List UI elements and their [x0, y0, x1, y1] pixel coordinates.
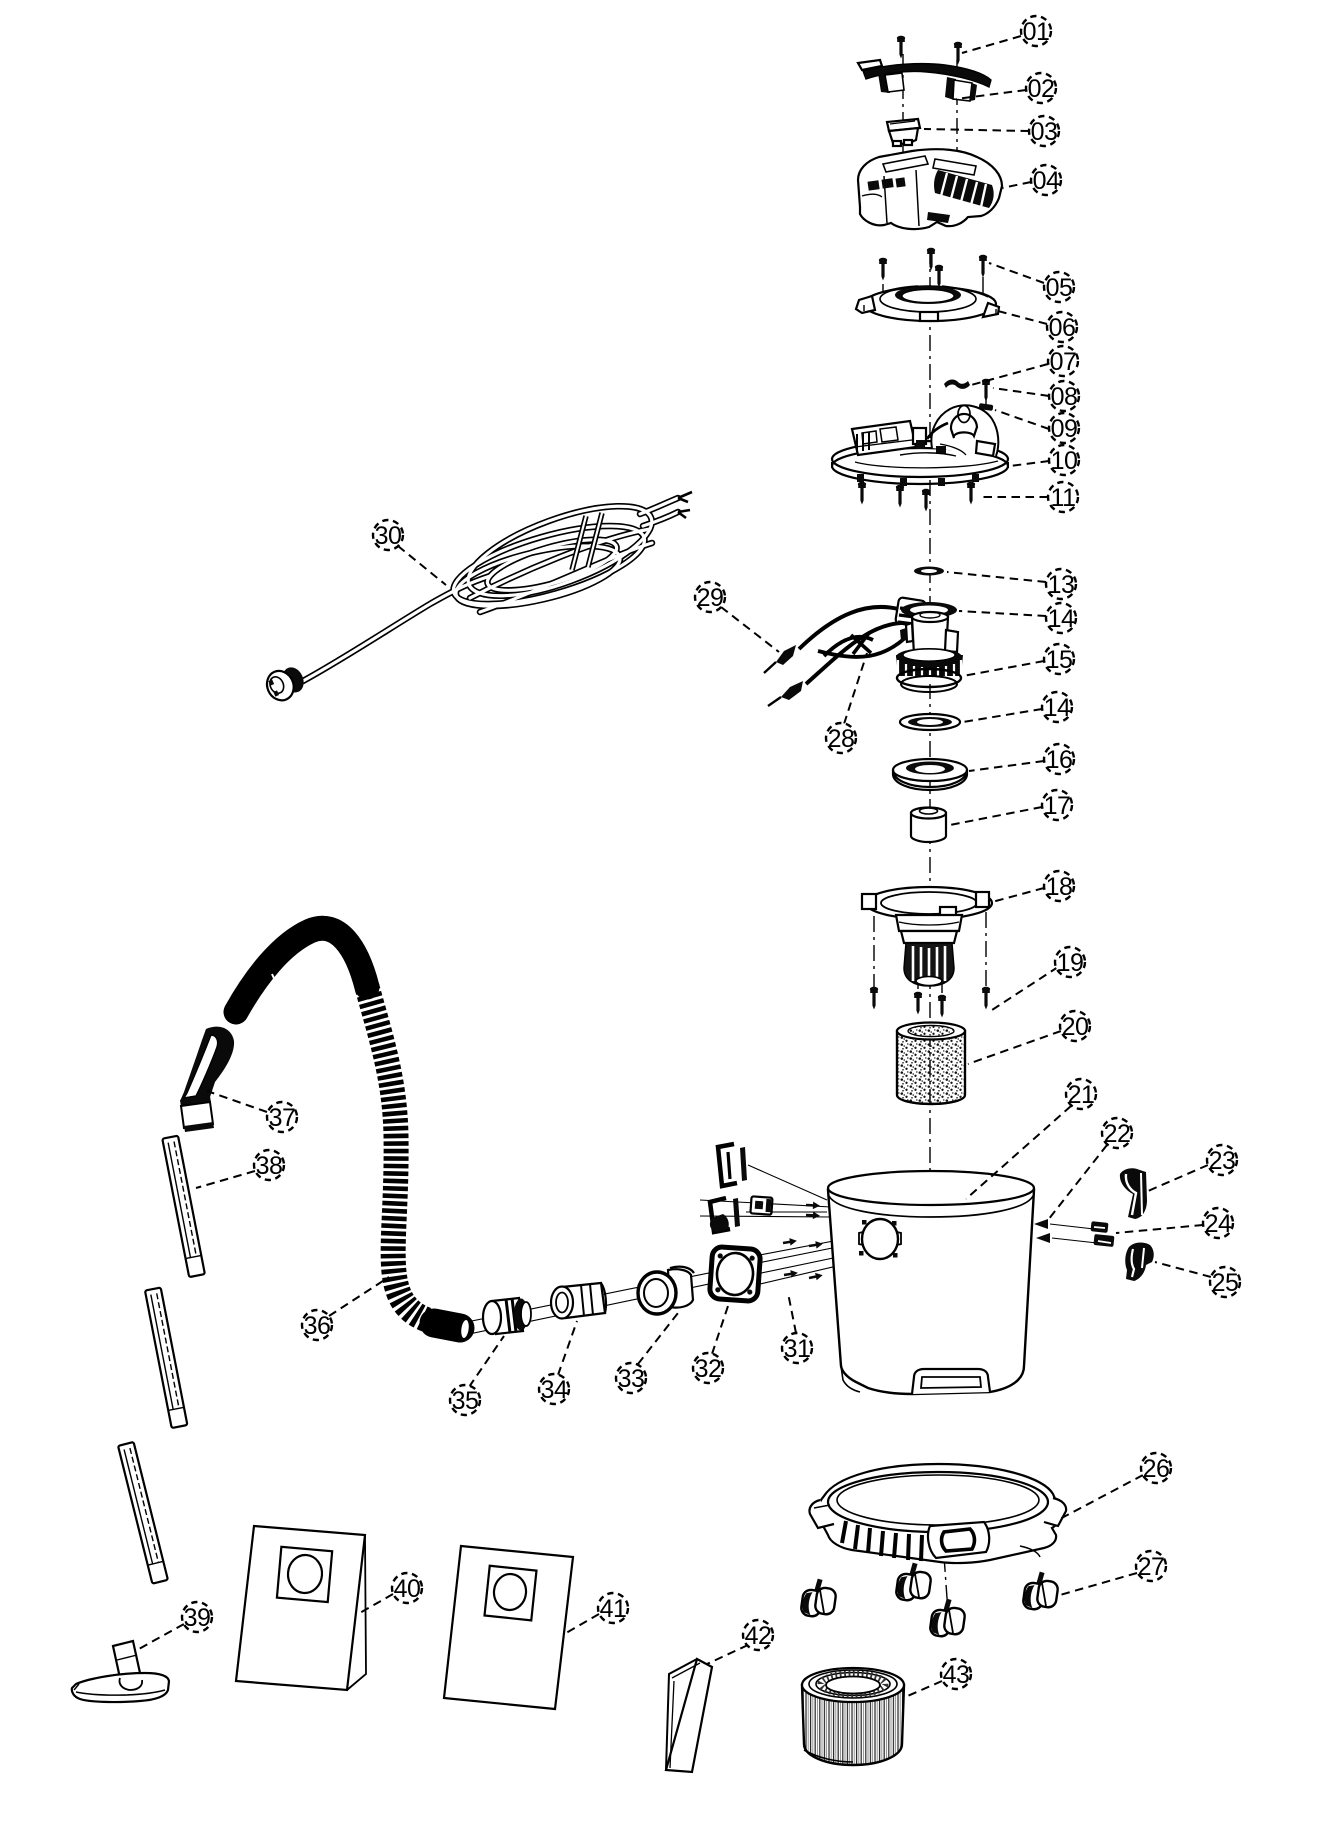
svg-text:32: 32	[695, 1355, 722, 1383]
svg-text:28: 28	[828, 725, 855, 753]
svg-text:07: 07	[1050, 348, 1077, 376]
svg-text:10: 10	[1051, 447, 1078, 475]
svg-text:27: 27	[1138, 1553, 1165, 1581]
svg-text:26: 26	[1143, 1455, 1170, 1483]
svg-text:18: 18	[1046, 873, 1073, 901]
svg-text:11: 11	[1051, 484, 1076, 512]
svg-text:34: 34	[541, 1376, 568, 1404]
svg-text:06: 06	[1049, 314, 1076, 342]
svg-text:41: 41	[600, 1595, 627, 1623]
svg-text:21: 21	[1068, 1081, 1095, 1109]
svg-text:31: 31	[784, 1335, 811, 1363]
svg-text:05: 05	[1046, 274, 1073, 302]
svg-text:22: 22	[1104, 1120, 1131, 1148]
svg-text:15: 15	[1046, 646, 1073, 674]
svg-text:17: 17	[1044, 792, 1071, 820]
svg-text:09: 09	[1051, 415, 1078, 443]
svg-text:02: 02	[1028, 75, 1055, 103]
svg-text:08: 08	[1051, 383, 1078, 411]
svg-text:01: 01	[1023, 18, 1050, 46]
svg-text:16: 16	[1046, 746, 1073, 774]
svg-text:04: 04	[1033, 167, 1060, 195]
svg-text:14: 14	[1044, 694, 1071, 722]
svg-text:25: 25	[1212, 1269, 1239, 1297]
svg-text:42: 42	[745, 1622, 772, 1650]
svg-text:39: 39	[184, 1604, 211, 1632]
svg-text:36: 36	[304, 1312, 331, 1340]
svg-text:33: 33	[618, 1365, 645, 1393]
svg-text:23: 23	[1209, 1147, 1236, 1175]
svg-text:37: 37	[269, 1104, 296, 1132]
svg-text:24: 24	[1205, 1210, 1232, 1238]
svg-text:35: 35	[452, 1387, 479, 1415]
svg-text:13: 13	[1048, 571, 1075, 599]
svg-text:03: 03	[1031, 118, 1058, 146]
svg-text:38: 38	[256, 1152, 283, 1180]
svg-text:43: 43	[943, 1661, 970, 1689]
svg-text:40: 40	[394, 1575, 421, 1603]
svg-text:30: 30	[375, 522, 402, 550]
svg-text:14: 14	[1048, 605, 1075, 633]
svg-text:19: 19	[1057, 949, 1084, 977]
svg-text:29: 29	[697, 584, 724, 612]
svg-text:20: 20	[1062, 1013, 1089, 1041]
